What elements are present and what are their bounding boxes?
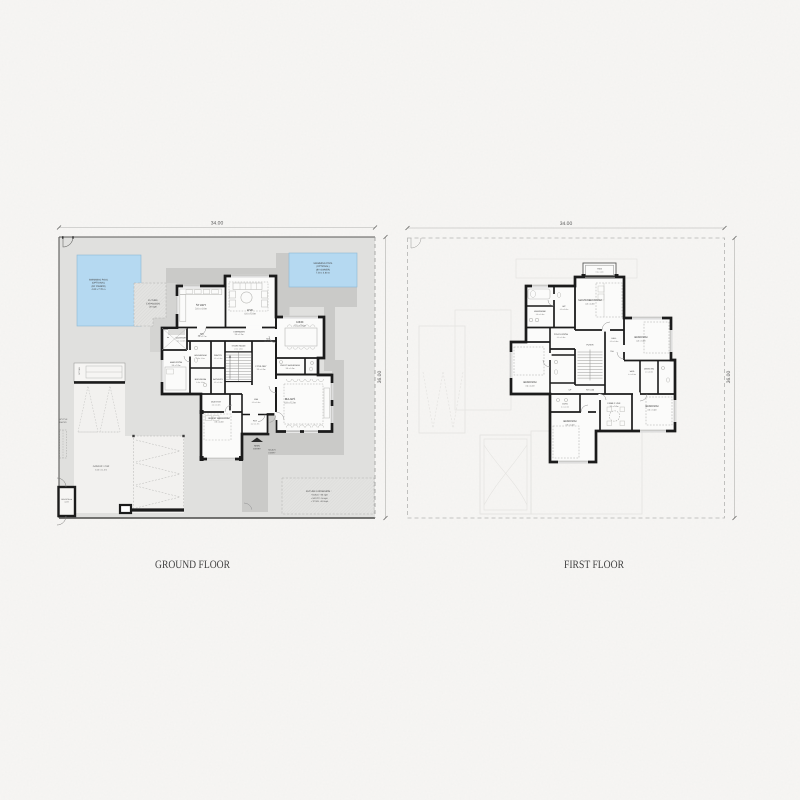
- svg-text:2.0 x 2.8m: 2.0 x 2.8m: [610, 340, 619, 343]
- svg-text:1.6 x 2.1m: 1.6 x 2.1m: [264, 340, 273, 343]
- svg-text:• BUILD +35 sqm: • BUILD +35 sqm: [311, 494, 328, 497]
- svg-text:MASTERBEDROOM: MASTERBEDROOM: [578, 299, 601, 302]
- svg-text:• VACGT +5 sqm: • VACGT +5 sqm: [311, 497, 328, 500]
- svg-text:WRD: WRD: [630, 370, 635, 373]
- svg-text:FOY: FOY: [253, 420, 258, 423]
- svg-text:PANTRY: PANTRY: [214, 354, 223, 357]
- svg-text:2.2 x 1.7m: 2.2 x 1.7m: [251, 422, 260, 425]
- svg-text:STORE ROOM: STORE ROOM: [232, 345, 246, 348]
- svg-text:4.2 x 3.6m: 4.2 x 3.6m: [294, 325, 306, 328]
- svg-text:GUEST BT: GUEST BT: [211, 401, 222, 404]
- svg-text:2.6 x 1.6m: 2.6 x 1.6m: [286, 367, 295, 370]
- svg-text:ENTRY: ENTRY: [268, 451, 276, 454]
- svg-text:3.4 x 4.2m: 3.4 x 4.2m: [525, 385, 535, 388]
- svg-text:5.50 x 11.0m: 5.50 x 11.0m: [95, 468, 107, 471]
- svg-text:BEDROOM: BEDROOM: [524, 381, 537, 384]
- svg-text:7.20 x 3.60 m: 7.20 x 3.60 m: [316, 272, 330, 275]
- svg-text:3.6 x 3.4m: 3.6 x 3.4m: [647, 409, 657, 412]
- svg-text:PEDESTRIAN: PEDESTRIAN: [61, 498, 73, 501]
- svg-text:WASH+DRY: WASH+DRY: [176, 337, 187, 340]
- svg-text:• TOTAL +40 sqm: • TOTAL +40 sqm: [311, 500, 328, 503]
- svg-text:SWIMMING POOL: SWIMMING POOL: [313, 262, 333, 265]
- svg-text:1.8 x 2.7m: 1.8 x 2.7m: [198, 335, 207, 338]
- svg-text:LIVE: LIVE: [247, 308, 254, 312]
- svg-text:2.2 x 1.9m: 2.2 x 1.9m: [557, 336, 566, 339]
- svg-text:BEDROOM: BEDROOM: [635, 336, 648, 339]
- svg-text:MAJLIS: MAJLIS: [268, 449, 276, 452]
- svg-text:2.1 x 2.0m: 2.1 x 2.0m: [177, 339, 186, 342]
- svg-text:36.00: 36.00: [377, 371, 383, 384]
- svg-text:1.6 x 2.8m: 1.6 x 2.8m: [645, 371, 653, 374]
- svg-text:FOY/LOBY: FOY/LOBY: [256, 365, 267, 368]
- svg-text:(BY OWNER): (BY OWNER): [316, 268, 330, 271]
- svg-text:(OPTIONAL): (OPTIONAL): [316, 265, 329, 268]
- svg-text:BATH/LDY: BATH/LDY: [213, 378, 223, 381]
- svg-text:(OPTIONAL): (OPTIONAL): [92, 282, 105, 285]
- svg-text:2.4 x 1.6m: 2.4 x 1.6m: [212, 403, 221, 406]
- svg-text:34.00: 34.00: [560, 221, 573, 227]
- svg-text:GUEST BEDROOM: GUEST BEDROOM: [208, 417, 229, 420]
- svg-text:ENTRY: ENTRY: [253, 447, 261, 450]
- svg-text:GROUND FLOOR: GROUND FLOOR: [155, 559, 230, 571]
- svg-text:(BY OWNER): (BY OWNER): [92, 285, 106, 288]
- svg-text:3.4 x 1.4m: 3.4 x 1.4m: [596, 270, 604, 273]
- svg-text:BEDROOM: BEDROOM: [646, 405, 659, 408]
- svg-text:2.6 x 1.6m: 2.6 x 1.6m: [234, 347, 243, 350]
- svg-text:TRCE: TRCE: [597, 268, 603, 271]
- svg-text:MAIN: MAIN: [254, 445, 260, 448]
- svg-text:trs: trs: [167, 336, 169, 339]
- svg-text:4.0 x 4.6m: 4.0 x 4.6m: [585, 303, 595, 306]
- svg-text:3.6 x 4.0m: 3.6 x 4.0m: [214, 421, 224, 424]
- svg-text:3.0 x 4.2m: 3.0 x 4.2m: [257, 368, 266, 371]
- svg-text:WASHROOM: WASHROOM: [194, 354, 206, 357]
- svg-text:4.6 x 5.0m: 4.6 x 5.0m: [244, 313, 256, 316]
- svg-text:3.0 x 3.6m: 3.0 x 3.6m: [610, 405, 619, 408]
- svg-text:WC: WC: [562, 305, 566, 308]
- svg-text:1.5 x 2.2m: 1.5 x 2.2m: [214, 357, 223, 360]
- svg-text:STUDY: STUDY: [196, 303, 206, 307]
- svg-text:DRESS RM: DRESS RM: [644, 368, 654, 371]
- svg-text:HALL: HALL: [611, 337, 617, 340]
- svg-text:MAJLIS: MAJLIS: [285, 397, 296, 401]
- svg-text:SWIMMING POOL: SWIMMING POOL: [89, 279, 109, 282]
- svg-text:1.8 x 2.2m: 1.8 x 2.2m: [196, 381, 205, 384]
- svg-text:SITTING: SITTING: [78, 367, 81, 375]
- svg-text:FUTURE EXPANSION :: FUTURE EXPANSION :: [306, 490, 332, 493]
- svg-text:BEDROOM: BEDROOM: [564, 420, 577, 423]
- svg-text:4.8 x 5.2m: 4.8 x 5.2m: [284, 402, 296, 405]
- svg-text:1.4 x 2.8m: 1.4 x 2.8m: [628, 373, 636, 376]
- svg-text:BATHROOM: BATHROOM: [195, 378, 207, 381]
- svg-text:4.00 x 7.70 m: 4.00 x 7.70 m: [92, 288, 106, 291]
- svg-text:20 sqm: 20 sqm: [149, 306, 157, 309]
- svg-text:RACKS: RACKS: [59, 421, 67, 424]
- svg-text:2.0 x 1.8m: 2.0 x 1.8m: [252, 401, 261, 404]
- svg-text:36.00: 36.00: [726, 371, 732, 384]
- svg-text:JOB: JOB: [254, 398, 259, 401]
- svg-text:FOY LOB: FOY LOB: [586, 389, 595, 392]
- svg-text:3.6 x 1.2m: 3.6 x 1.2m: [235, 333, 244, 336]
- svg-text:2.0 x 3.6m: 2.0 x 3.6m: [560, 308, 569, 311]
- svg-text:FIRST FLOOR: FIRST FLOOR: [564, 559, 624, 571]
- svg-text:WARDROBE: WARDROBE: [534, 310, 546, 313]
- svg-text:FAMILY LIVE: FAMILY LIVE: [608, 402, 621, 405]
- svg-text:BT/TB: BT/TB: [562, 403, 568, 406]
- svg-text:2.6 x 3.2m: 2.6 x 3.2m: [172, 364, 181, 367]
- svg-text:4.0 x 3.4m: 4.0 x 3.4m: [636, 340, 646, 343]
- svg-text:DINE: DINE: [296, 320, 303, 324]
- svg-text:3.8 x 4.4m: 3.8 x 4.4m: [565, 424, 575, 427]
- svg-text:GUEST WASHROOM: GUEST WASHROOM: [280, 364, 300, 367]
- svg-text:FOYER: FOYER: [587, 344, 594, 347]
- svg-text:1.5 x 2.2m: 1.5 x 2.2m: [214, 381, 223, 384]
- svg-text:2.4 x 1.6m: 2.4 x 1.6m: [561, 405, 569, 408]
- svg-text:2.8 x 1.8m: 2.8 x 1.8m: [536, 313, 545, 316]
- svg-text:STUDY ROOM: STUDY ROOM: [554, 333, 568, 336]
- svg-text:MAID ROOM: MAID ROOM: [170, 361, 183, 364]
- svg-text:3.6 x 4.0m: 3.6 x 4.0m: [195, 308, 207, 311]
- svg-text:CORRIDOR: CORRIDOR: [233, 331, 245, 334]
- svg-text:BICYCLE: BICYCLE: [59, 418, 69, 421]
- svg-text:1.8 x 2.2m: 1.8 x 2.2m: [196, 357, 205, 360]
- svg-text:34.00: 34.00: [211, 221, 224, 227]
- svg-text:GARAGE / CAR: GARAGE / CAR: [93, 465, 110, 468]
